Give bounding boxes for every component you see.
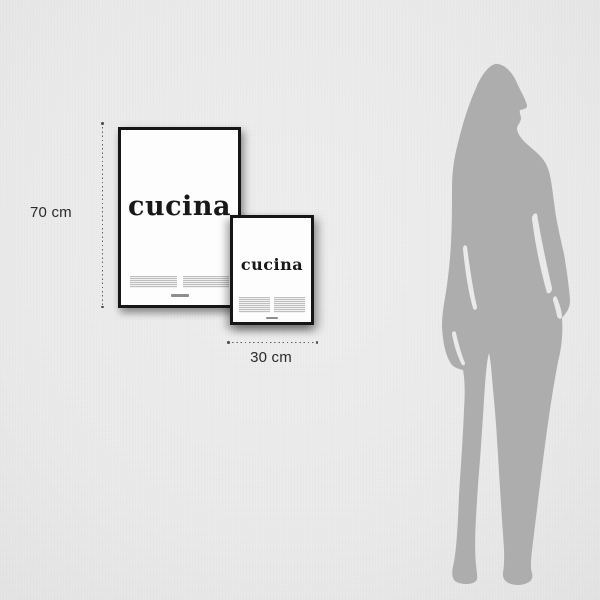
poster-brand-mark-large xyxy=(171,294,189,297)
width-dimension-label: 30 cm xyxy=(238,349,304,366)
poster-fine-print-large xyxy=(130,276,229,288)
poster-frame-small: cucina xyxy=(230,215,314,325)
poster-title-large: cucina xyxy=(121,193,238,220)
poster-fine-print-small xyxy=(239,297,305,313)
width-dimension-line xyxy=(228,342,317,343)
person-silhouette xyxy=(430,55,575,595)
fine-print-column xyxy=(274,297,305,313)
fine-print-column xyxy=(130,276,177,288)
poster-frame-large: cucina xyxy=(118,127,241,308)
fine-print-column xyxy=(239,297,270,313)
height-dimension-line xyxy=(102,123,103,307)
height-dimension-label: 70 cm xyxy=(30,204,80,221)
poster-size-comparison-scene: 70 cm cucina cucina 30 cm xyxy=(0,0,600,600)
poster-title-small: cucina xyxy=(233,257,311,273)
fine-print-column xyxy=(183,276,230,288)
poster-brand-mark-small xyxy=(266,317,278,319)
